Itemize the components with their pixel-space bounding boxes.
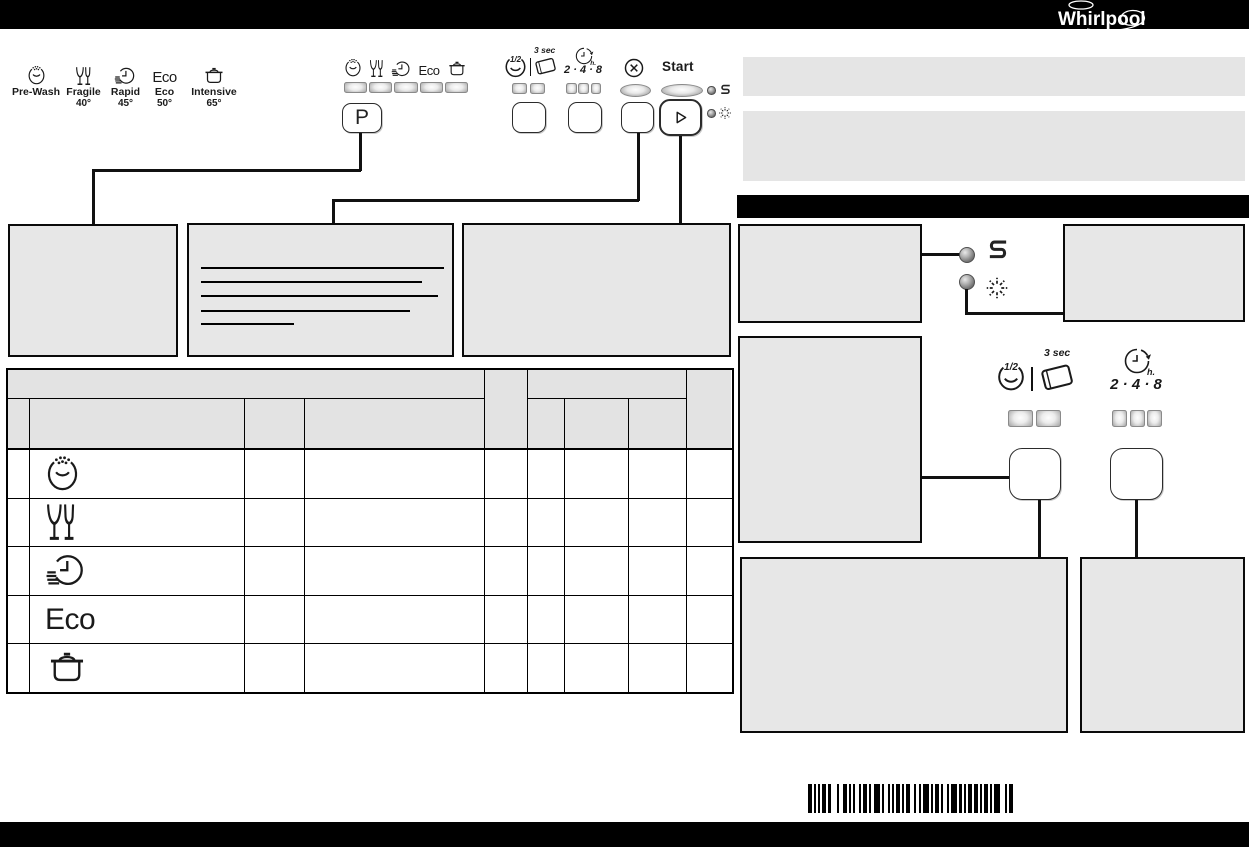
rinse-aid-led-detail [959, 274, 975, 290]
delay-led-2h [1112, 410, 1127, 427]
legend-fragile: Fragile 40° [62, 64, 105, 109]
salt-indicator-icon [719, 84, 732, 96]
connector-half-load-box [1038, 500, 1041, 557]
start-led [661, 84, 703, 97]
delay-leds-detail [1112, 410, 1162, 427]
delay-led-4h [578, 83, 589, 94]
connector-start-button [679, 136, 682, 225]
half-load-led-1 [1008, 410, 1033, 427]
cancel-icon [623, 57, 645, 79]
table-row-eco: Eco [8, 596, 732, 645]
legend-eco-temp: 50° [157, 98, 172, 109]
connector-cancel-button [332, 199, 335, 225]
note-box-salt [738, 224, 922, 323]
whirlpool-logo-graphic: Whirlpool [1053, 0, 1171, 38]
delay-button-detail[interactable] [1110, 448, 1163, 500]
bottom-footer-bar [0, 822, 1249, 847]
half-load-icon: 1/2 [995, 362, 1027, 394]
connector-p-button [92, 169, 361, 172]
note-box-start [462, 223, 731, 357]
prewash-icon [344, 58, 362, 78]
legend-intensive-temp: 65° [206, 98, 221, 109]
connector-rinse-led [965, 312, 1063, 315]
note-box-program-select [8, 224, 178, 357]
delay-led-8h [591, 83, 602, 94]
start-button[interactable] [659, 99, 702, 136]
icon-divider [1031, 367, 1033, 391]
program-select-button[interactable]: P [342, 103, 382, 133]
icon-divider [530, 58, 532, 76]
pot-icon [30, 644, 245, 692]
header-options-group [528, 370, 687, 399]
legend-fragile-temp: 40° [76, 98, 91, 109]
salt-led [707, 86, 716, 95]
header-col-description [305, 399, 485, 448]
rapid-clock-icon [114, 64, 137, 86]
rinse-aid-led [707, 109, 716, 118]
eco-icon: Eco [419, 63, 440, 78]
header-col-detergent [245, 399, 305, 448]
note-box-options [740, 557, 1068, 733]
note-box-rinse-aid [1063, 224, 1245, 322]
delay-led-4h [1130, 410, 1145, 427]
salt-indicator-icon [985, 239, 1011, 262]
prewash-icon [27, 64, 46, 86]
program-led-4 [420, 82, 443, 93]
right-text-block-1 [743, 57, 1245, 96]
header-col-number [8, 399, 30, 448]
wine-glasses-icon [75, 64, 93, 86]
table-row-rapid [8, 547, 732, 596]
delay-timer-icon: h. [574, 46, 594, 66]
connector-cancel-button [332, 199, 639, 202]
connector-p-button [359, 133, 362, 171]
delay-button[interactable] [568, 102, 602, 133]
header-subcol-3 [629, 399, 687, 448]
connector-p-button [92, 169, 95, 225]
pot-icon [202, 64, 226, 86]
legend-rapid-temp: 45° [118, 98, 133, 109]
right-text-block-2 [743, 111, 1245, 181]
program-led-1 [344, 82, 367, 93]
prewash-icon [30, 450, 245, 498]
delay-options-label: 2 · 4 · 8 [562, 64, 604, 76]
table-header [8, 370, 732, 450]
panel-program-leds [344, 82, 468, 93]
connector-salt-led [922, 253, 960, 256]
half-load-leds [512, 83, 545, 94]
program-button-label: P [355, 106, 369, 130]
legend-rapid: Rapid 45° [105, 64, 146, 109]
half-load-led-2 [530, 83, 545, 94]
connector-half-load [922, 476, 1009, 479]
header-subcol-2 [565, 399, 629, 448]
pot-icon [446, 60, 468, 78]
delay-options-label-detail: 2 · 4 · 8 [1102, 376, 1170, 393]
program-led-5 [445, 82, 468, 93]
eco-icon: Eco [30, 596, 245, 644]
half-load-button-detail[interactable] [1009, 448, 1061, 500]
legend-intensive: Intensive 65° [183, 64, 245, 109]
program-led-3 [394, 82, 417, 93]
barcode [808, 784, 1013, 813]
connector-cancel-button [637, 133, 640, 201]
legend-prewash: Pre-Wash [10, 64, 62, 98]
eco-icon: Eco [152, 64, 176, 86]
legend-prewash-name: Pre-Wash [12, 86, 60, 98]
panel-program-icons: Eco [344, 56, 468, 78]
wine-glasses-icon [30, 499, 245, 547]
play-icon [671, 108, 690, 127]
note-box-delay [1080, 557, 1245, 733]
half-load-icon: 1/2 [503, 55, 528, 80]
half-load-led-2 [1036, 410, 1061, 427]
connector-delay-box [1135, 500, 1138, 557]
table-row-intensive [8, 644, 732, 692]
legend-eco: Eco Eco 50° [146, 64, 183, 109]
rapid-clock-icon [391, 60, 412, 78]
rapid-clock-icon [30, 547, 245, 595]
cancel-button[interactable] [621, 102, 654, 133]
right-section-header-bar [737, 195, 1249, 218]
half-load-led-1 [512, 83, 527, 94]
whirlpool-logo: Whirlpool [1053, 0, 1171, 38]
note-box-cancel [187, 223, 454, 357]
legend-rapid-name: Rapid [111, 86, 140, 98]
table-row-prewash [8, 450, 732, 499]
header-col-consumption [485, 370, 528, 448]
delay-leds [566, 83, 601, 94]
connector-rinse-led [965, 289, 968, 314]
tablet-icon [1037, 359, 1077, 395]
quick-guide-page: Whirlpool Pre-Wash Fragile 40° Rapid 45° [0, 0, 1249, 847]
table-row-fragile [8, 499, 732, 548]
tablet-icon [533, 54, 558, 78]
half-load-leds-detail [1008, 410, 1061, 427]
rinse-aid-icon [718, 106, 732, 120]
program-led-2 [369, 82, 392, 93]
delay-led-2h [566, 83, 577, 94]
delay-led-8h [1147, 410, 1162, 427]
legend-intensive-name: Intensive [191, 86, 237, 98]
header-subcol-1 [528, 399, 565, 448]
rinse-aid-icon [984, 276, 1010, 300]
header-col-last [687, 370, 731, 448]
note-box-half-load [738, 336, 922, 543]
half-load-button[interactable] [512, 102, 546, 133]
start-label: Start [662, 59, 694, 74]
program-legend: Pre-Wash Fragile 40° Rapid 45° Eco Eco 5… [10, 64, 245, 109]
program-table: Eco [6, 368, 734, 694]
wine-glasses-icon [369, 59, 385, 78]
legend-fragile-name: Fragile [66, 86, 100, 98]
salt-led-detail [959, 247, 975, 263]
legend-eco-name: Eco [155, 86, 174, 98]
delay-timer-icon: h. [1122, 346, 1152, 376]
header-col-program [30, 399, 245, 448]
header-programs-group [8, 370, 485, 399]
cancel-led [620, 84, 651, 97]
tablet-hold-label-detail: 3 sec [1044, 347, 1070, 359]
